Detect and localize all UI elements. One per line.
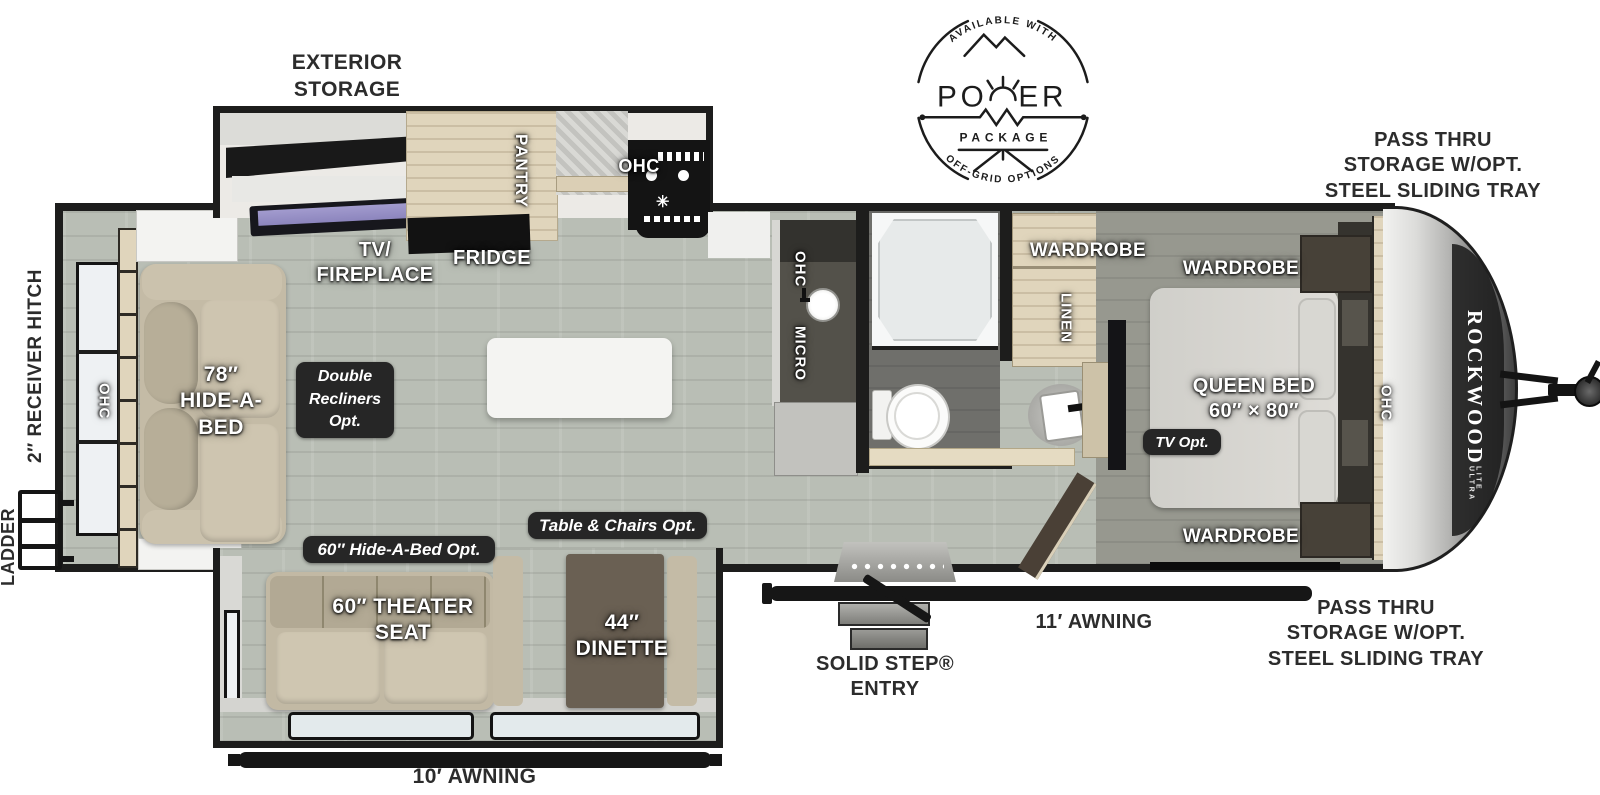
brand-logo: ROCKWOOD ULTRA LITE [1462,310,1487,490]
ohc-bedroom-label: OHC [1374,377,1398,429]
fridge-label: FRIDGE [428,246,556,271]
kitchen-island [487,338,672,418]
wardrobe-bottom-label: WARDROBE [1174,525,1308,549]
burner-icon: ✳ [656,192,676,212]
pass-thru-label-top: PASS THRU STORAGE W/OPT. STEEL SLIDING T… [1288,128,1578,204]
bath-wall-right [1000,211,1012,361]
microwave-cabinet [774,402,858,476]
rv-floorplan: AVAILABLE WITH OFF-GRID OPTIONS PO ER PA… [0,0,1600,795]
step-strip [869,448,1075,466]
double-recliners-opt-badge: Double Recliners Opt. [296,362,394,438]
exterior-storage-label: EXTERIOR STORAGE [262,50,432,103]
sun-icon [991,88,1016,100]
pantry-label: PANTRY [508,120,534,222]
dinette-bench [667,556,697,706]
tv-fireplace-label: TV/ FIREPLACE [301,238,449,288]
dinette-label: 44″ DINETTE [574,610,670,663]
hide-a-bed-opt-badge: 60″ Hide-A-Bed Opt. [303,536,495,563]
logo-power-left: PO [937,81,988,114]
slideout-side-window [224,610,240,708]
brand-name: ROCKWOOD [1462,310,1487,466]
ohc-rear-label: OHC [93,376,115,426]
shower-glass [872,346,998,350]
logo-power-right: ER [1018,81,1067,114]
shower-pan [878,219,992,341]
ladder-icon [18,490,62,570]
dinette-bench [493,556,523,706]
power-package-logo: AVAILABLE WITH OFF-GRID OPTIONS PO ER PA… [905,4,1101,196]
micro-label: MICRO [788,314,812,392]
slideout-window [490,712,700,740]
wardrobe-cabinet-bottom [1300,502,1372,558]
receiver-hitch-label: 2″ RECEIVER HITCH [25,256,51,476]
queen-bed-label: QUEEN BED 60″ × 80″ [1178,374,1330,424]
ohc-counter-label: OHC [788,243,812,295]
wardrobe-top-label: WARDROBE [1174,257,1308,281]
awning-main-label: 11′ AWNING [1014,610,1174,635]
logo-package: PACKAGE [960,130,1053,144]
wardrobe-entry-label: WARDROBE [1022,239,1154,263]
table-chairs-opt-badge: Table & Chairs Opt. [528,512,707,539]
ladder-label: LADDER [0,497,20,597]
bath-wall-left [856,211,869,473]
bedroom-tv [1108,320,1126,470]
pass-thru-label-bottom: PASS THRU STORAGE W/OPT. STEEL SLIDING T… [1226,596,1526,672]
slideout-window [288,712,474,740]
linen-label: LINEN [1053,279,1079,357]
theater-seat-label: 60″ THEATER SEAT [326,594,480,647]
pillow [1298,410,1336,512]
bedroom-window [1150,562,1340,570]
corner-cabinet [708,212,770,258]
brand-sub: ULTRA LITE [1468,466,1482,501]
mountain-icon [965,35,1025,56]
tv-opt-badge: TV Opt. [1143,429,1221,455]
hide-a-bed-label: 78″ HIDE-A- BED [168,362,274,441]
rear-ohc-cabinet [118,228,138,568]
ohc-range-label: OHC [600,155,678,178]
wardrobe-cabinet-top [1300,235,1372,293]
solid-step-entry-label: SOLID STEP® ENTRY [795,652,975,703]
awning-slide-label: 10′ AWNING [392,764,557,791]
vanity-sink [1039,389,1085,442]
